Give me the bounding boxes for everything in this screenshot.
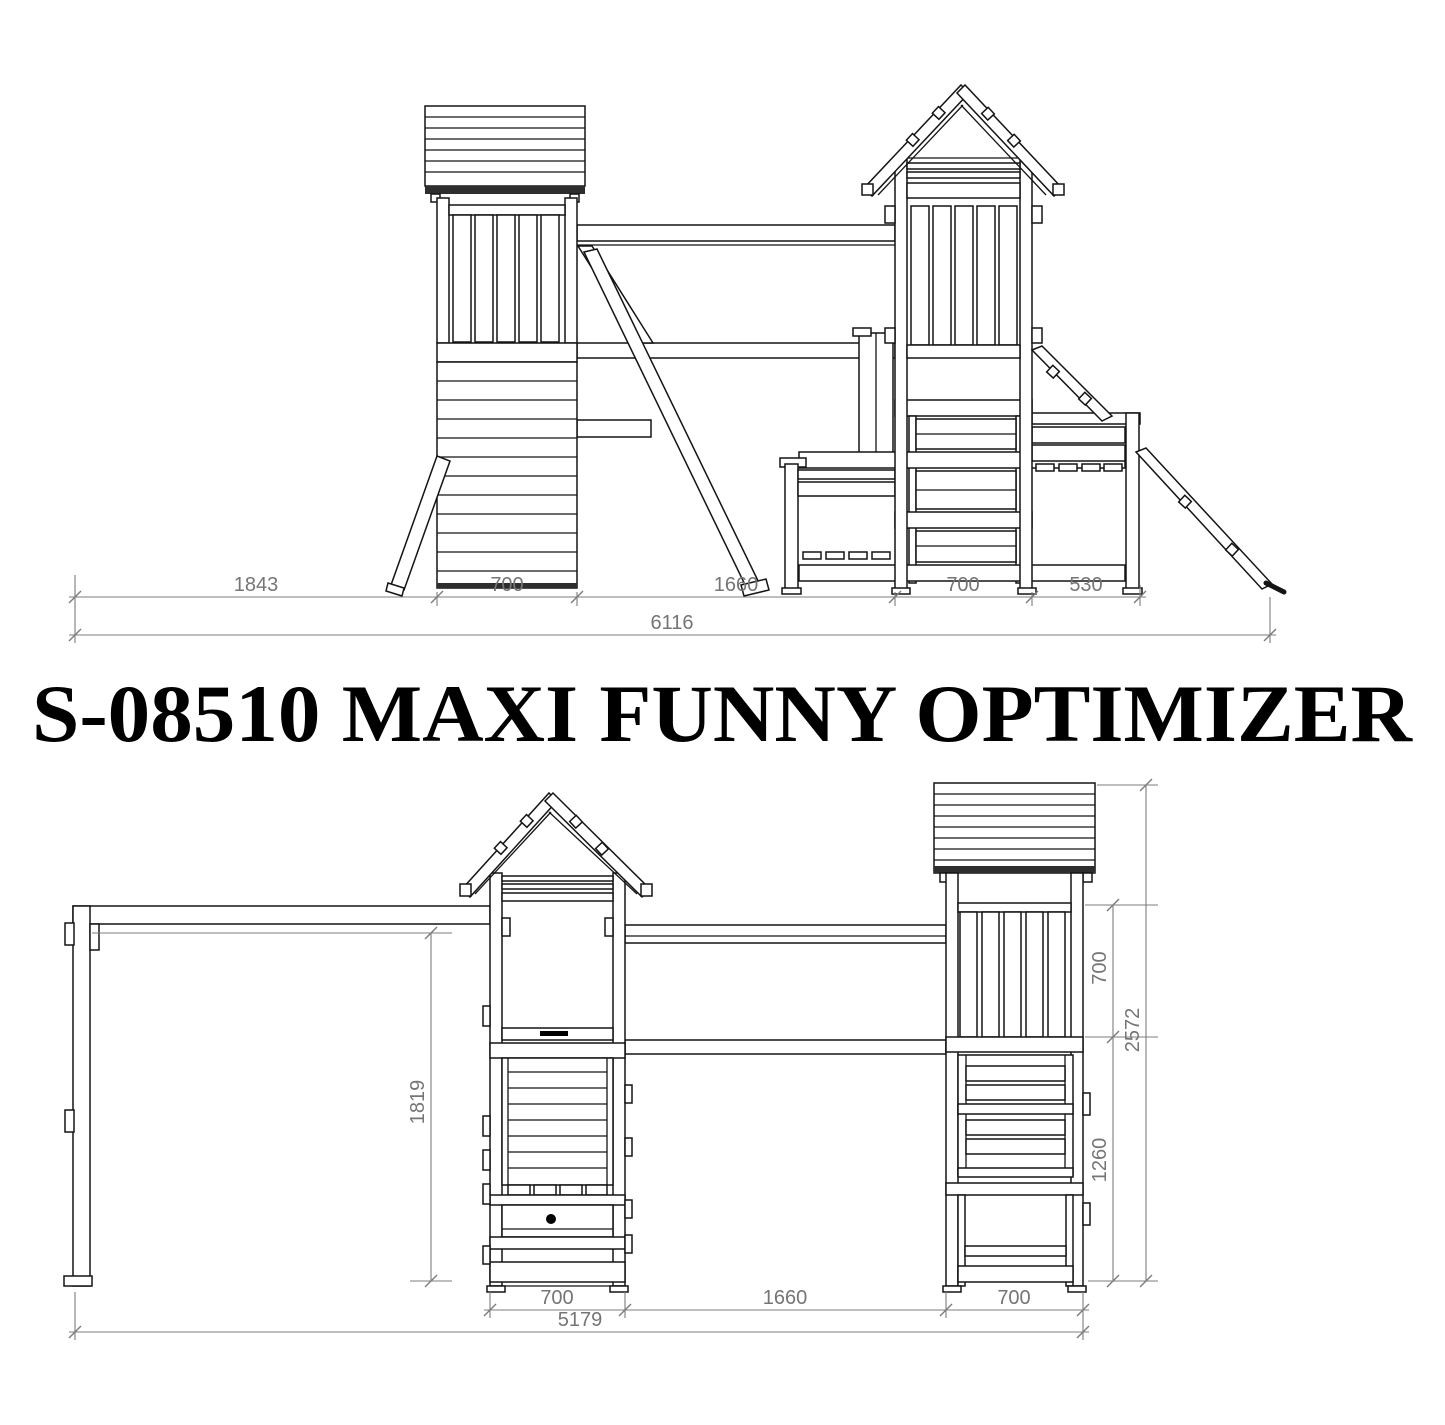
sandbox-panel (502, 1205, 613, 1237)
top-view: 1843 700 1660 700 530 6116 (69, 85, 1284, 643)
dim-label-1660-bottom: 1660 (763, 1287, 808, 1309)
dim-label-1843: 1843 (234, 574, 279, 596)
access-ladder (577, 246, 769, 596)
dim-label-6116: 6116 (650, 612, 693, 634)
left-tower (386, 106, 585, 596)
dim-label-700-upper: 700 (1089, 951, 1111, 984)
dim-label-1260: 1260 (1089, 1138, 1111, 1183)
right-tower-rear (934, 783, 1095, 1292)
bridge-beams (577, 225, 895, 358)
product-title: S-08510 MAXI FUNNY OPTIMIZER (32, 668, 1413, 759)
dim-label-700-left: 700 (490, 574, 523, 596)
technical-drawing-sheet: 1843 700 1660 700 530 6116 S-08510 MAXI … (0, 0, 1445, 1425)
bridge-beams-rear (625, 925, 946, 1054)
dim-label-530: 530 (1069, 574, 1102, 596)
dim-label-700-right: 700 (946, 574, 979, 596)
dim-label-700-bottom-right: 700 (997, 1287, 1030, 1309)
gable-roof (862, 85, 1064, 196)
dim-label-700-bottom-left: 700 (540, 1287, 573, 1309)
bottom-view: 1819 700 1260 2572 (64, 779, 1158, 1340)
playground-technical-drawing: 1843 700 1660 700 530 6116 S-08510 MAXI … (0, 0, 1445, 1425)
left-tower-rear (460, 793, 652, 1292)
picnic-benches (780, 328, 1142, 594)
panel-hole (546, 1214, 556, 1224)
dim-label-1660: 1660 (714, 574, 759, 596)
climbing-wall (502, 1058, 613, 1185)
top-view-dimensions: 1843 700 1660 700 530 6116 (69, 574, 1276, 643)
dim-label-1819: 1819 (407, 1080, 429, 1125)
dim-label-2572: 2572 (1122, 1008, 1144, 1053)
dim-label-5179: 5179 (558, 1309, 603, 1331)
